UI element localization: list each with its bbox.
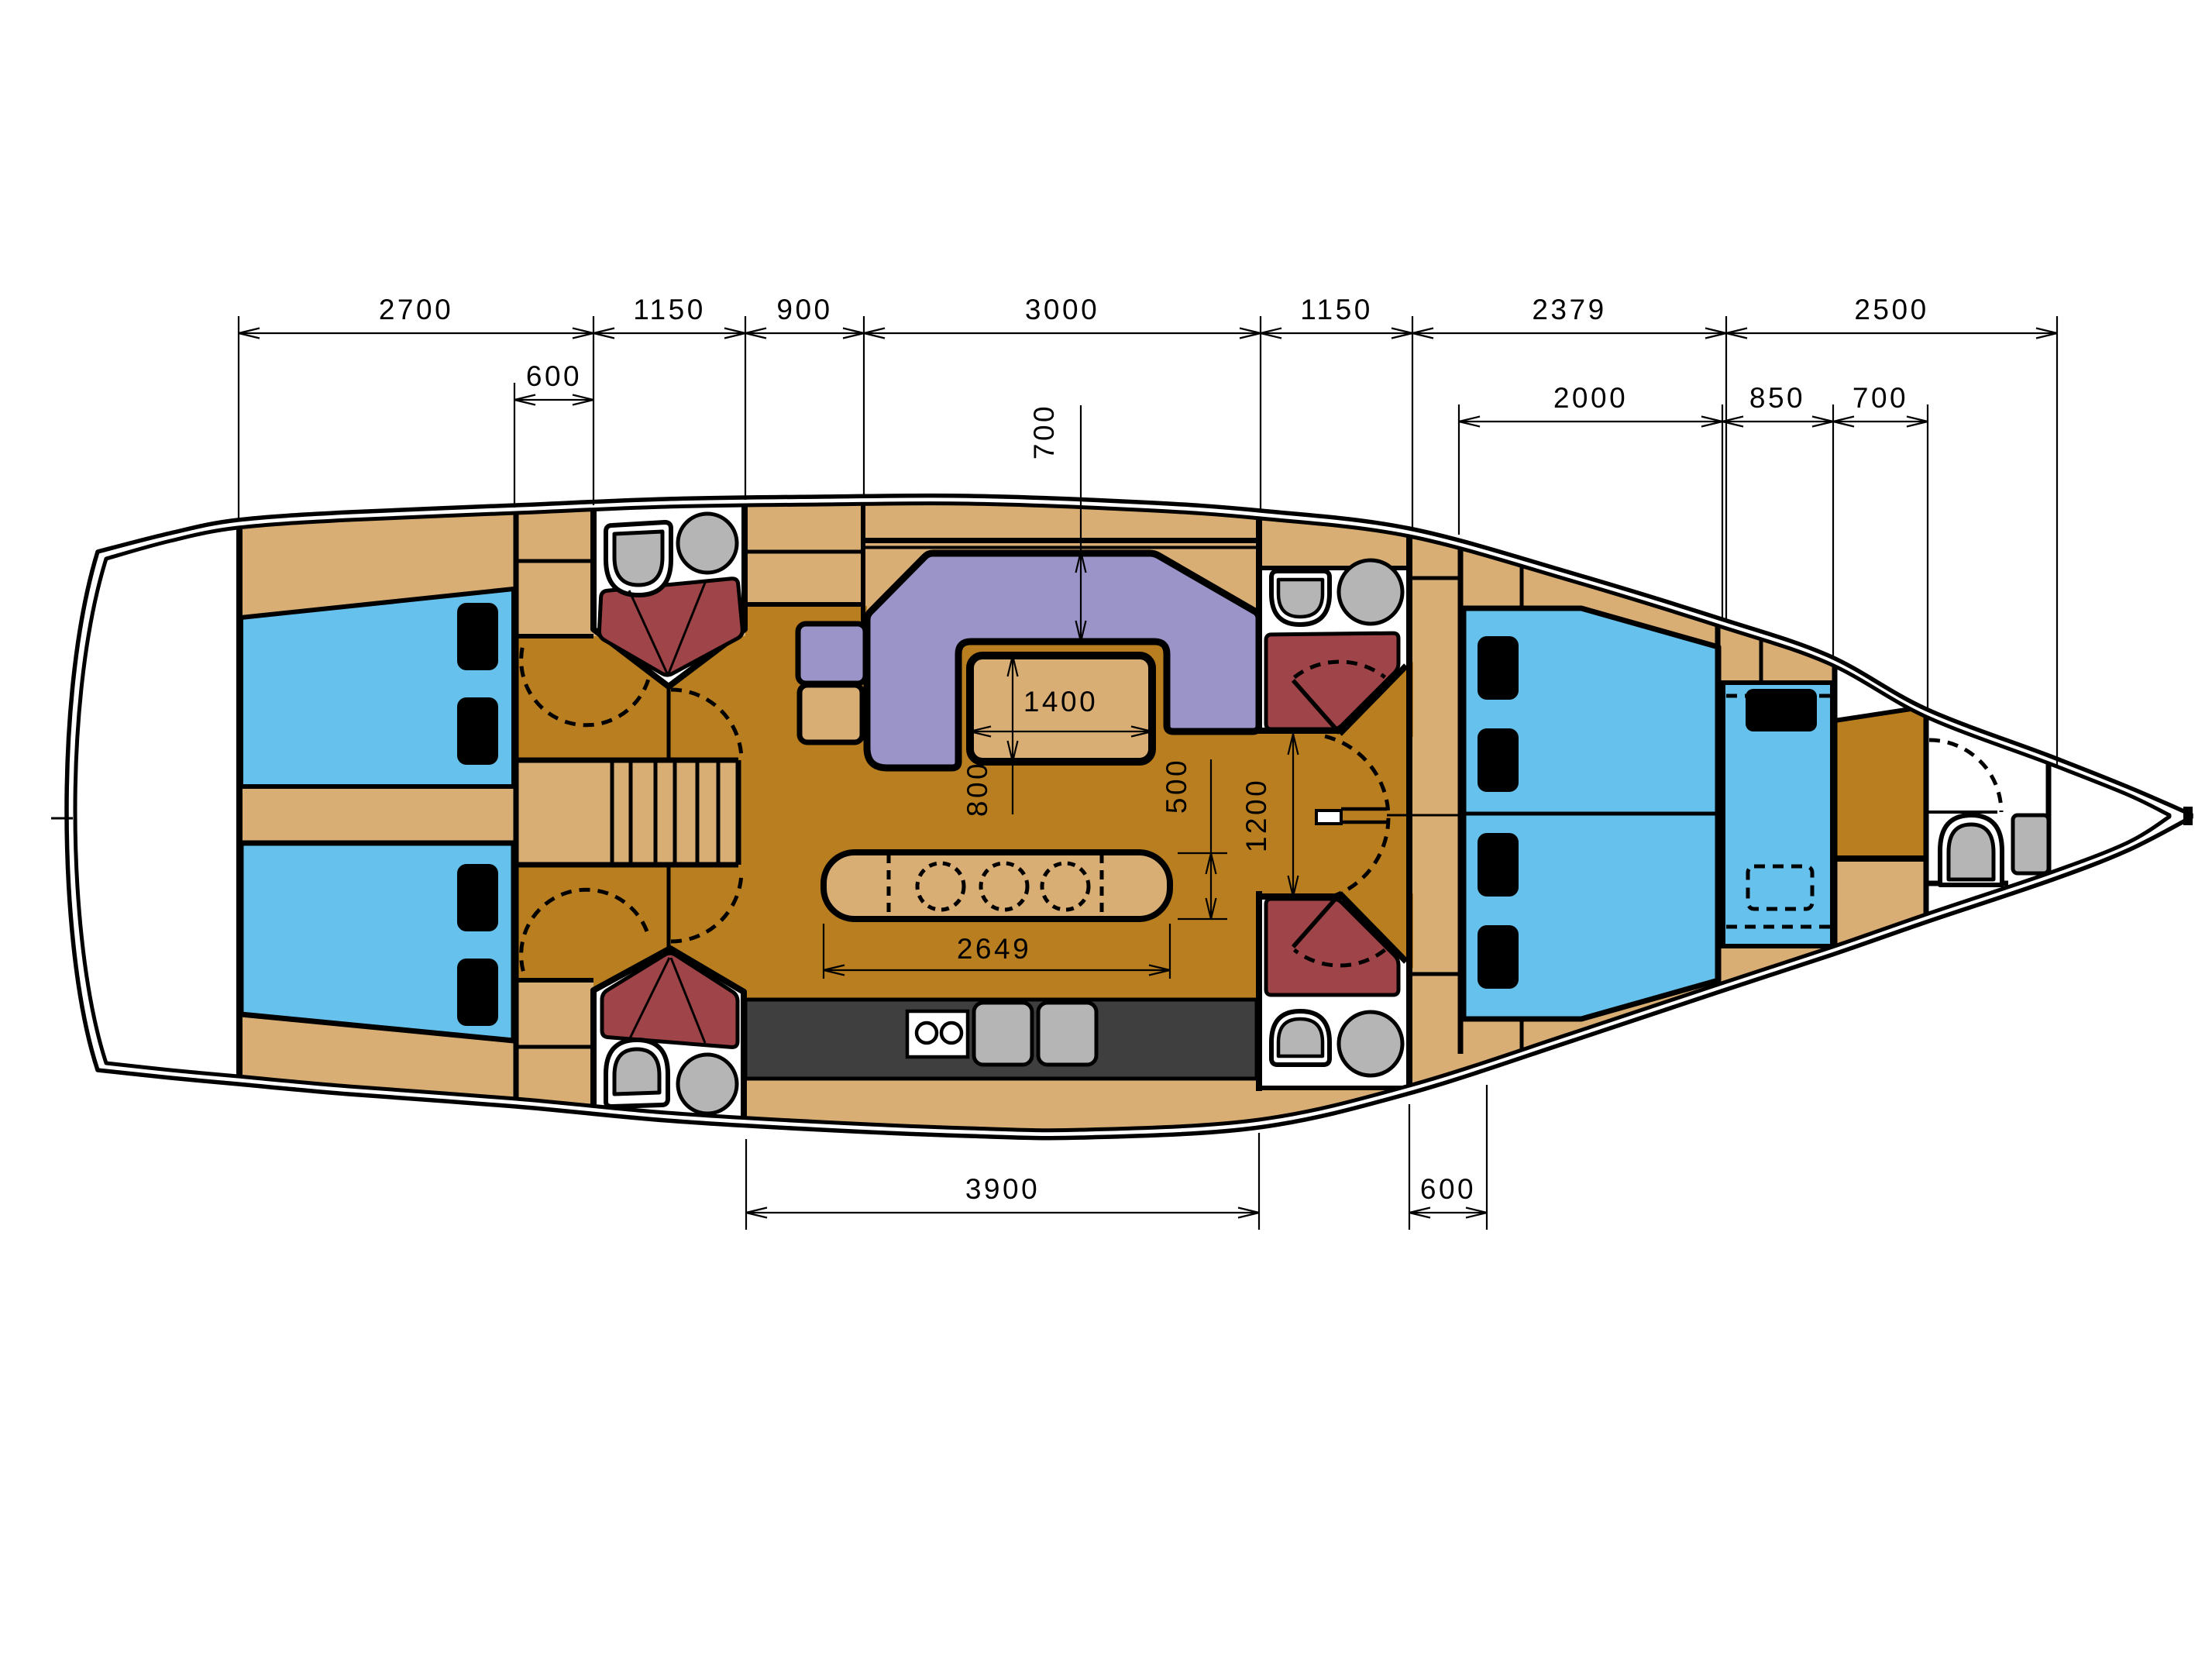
svg-text:800: 800 — [962, 761, 993, 817]
svg-text:1150: 1150 — [1300, 294, 1373, 325]
svg-text:1400: 1400 — [1023, 686, 1098, 718]
svg-text:600: 600 — [1420, 1173, 1476, 1205]
svg-text:2379: 2379 — [1532, 294, 1606, 325]
svg-text:2649: 2649 — [957, 933, 1031, 965]
svg-text:900: 900 — [776, 294, 832, 325]
svg-text:3000: 3000 — [1025, 294, 1099, 325]
svg-text:2000: 2000 — [1553, 382, 1628, 414]
svg-text:500: 500 — [1161, 758, 1192, 814]
svg-text:2700: 2700 — [379, 294, 453, 325]
svg-text:700: 700 — [1853, 382, 1908, 414]
svg-text:700: 700 — [1028, 404, 1060, 459]
svg-text:850: 850 — [1749, 382, 1805, 414]
svg-text:1150: 1150 — [633, 294, 706, 325]
svg-text:3900: 3900 — [965, 1173, 1040, 1205]
svg-text:2500: 2500 — [1854, 294, 1928, 325]
svg-text:1200: 1200 — [1240, 778, 1272, 852]
svg-text:600: 600 — [526, 360, 582, 392]
